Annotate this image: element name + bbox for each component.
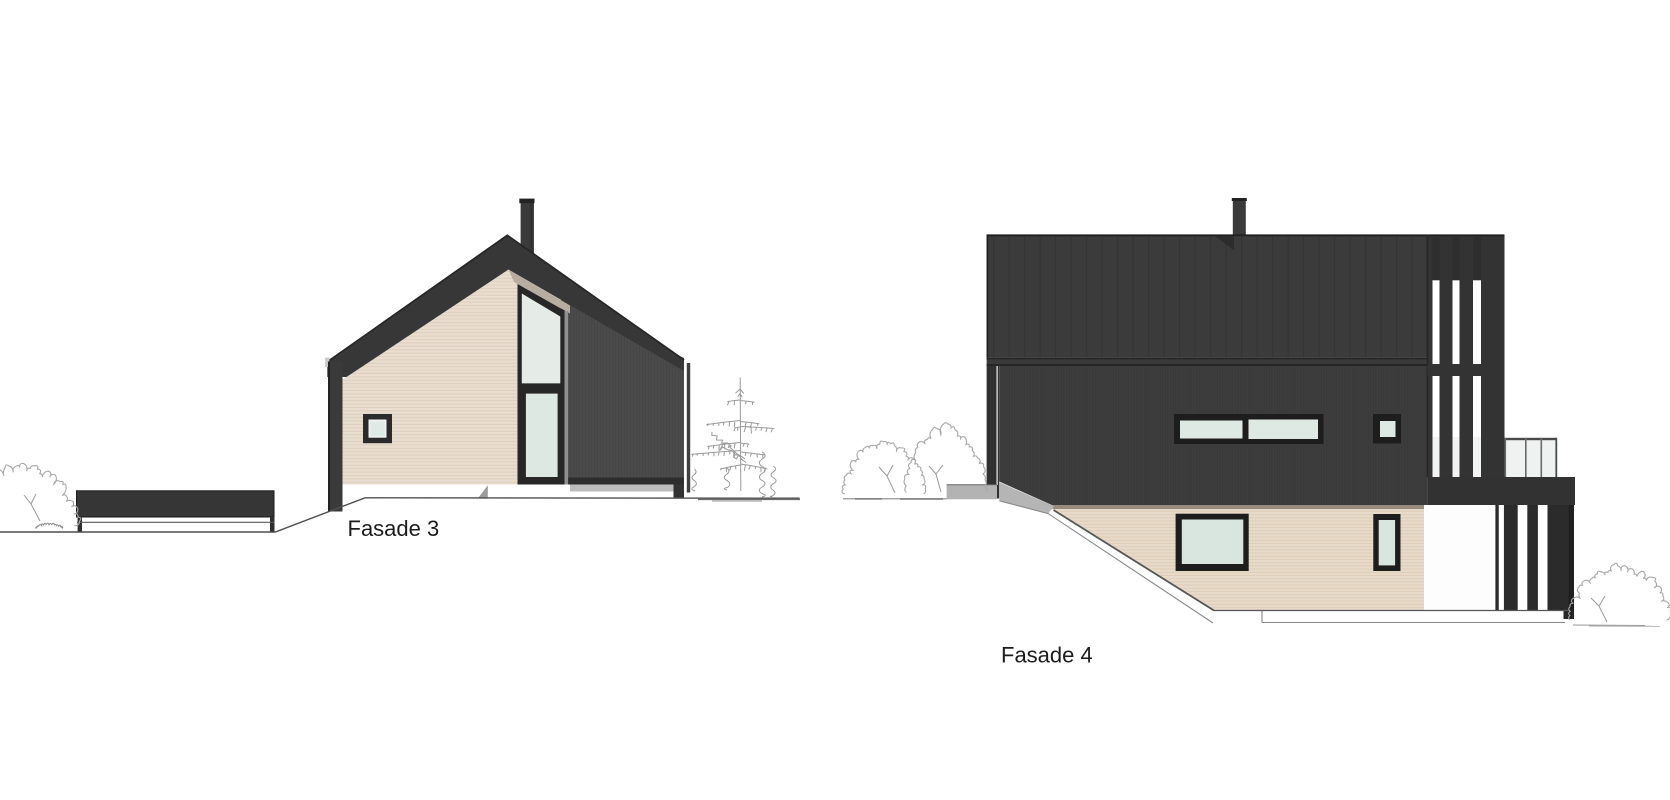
- svg-text:Fasade 3: Fasade 3: [348, 516, 440, 541]
- svg-text:Fasade 4: Fasade 4: [1001, 643, 1093, 668]
